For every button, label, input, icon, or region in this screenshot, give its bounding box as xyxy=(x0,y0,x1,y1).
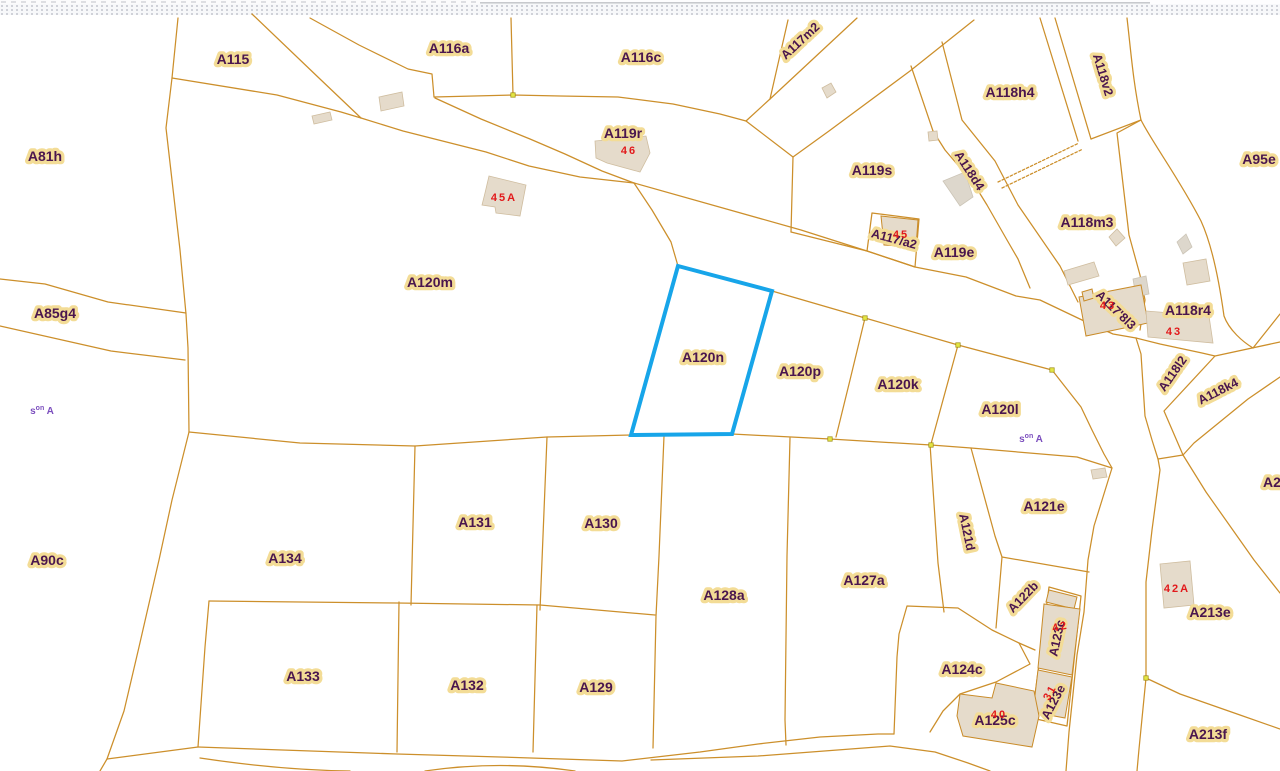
svg-text:A95e: A95e xyxy=(1242,151,1276,167)
svg-text:A85g4: A85g4 xyxy=(34,305,76,321)
svg-text:A129: A129 xyxy=(579,679,613,695)
svg-text:A213e: A213e xyxy=(1189,604,1230,620)
svg-text:46: 46 xyxy=(621,145,637,157)
svg-text:A90c: A90c xyxy=(30,552,64,568)
svg-text:A119s: A119s xyxy=(852,162,893,178)
svg-text:A115: A115 xyxy=(217,51,250,67)
svg-text:A134: A134 xyxy=(268,550,302,566)
svg-text:A120l: A120l xyxy=(981,401,1018,417)
svg-text:A130: A130 xyxy=(584,515,618,531)
svg-text:45: 45 xyxy=(893,229,909,241)
svg-text:43: 43 xyxy=(1166,326,1182,338)
svg-text:A131: A131 xyxy=(458,514,492,530)
svg-text:A118m3: A118m3 xyxy=(1061,214,1114,230)
svg-text:A127a: A127a xyxy=(843,572,884,588)
svg-text:A120k: A120k xyxy=(877,376,918,392)
svg-text:A2: A2 xyxy=(1263,474,1280,490)
svg-text:40: 40 xyxy=(991,709,1007,721)
svg-text:A128a: A128a xyxy=(703,587,744,603)
svg-text:A120n: A120n xyxy=(682,349,724,365)
svg-text:A116a: A116a xyxy=(429,40,470,56)
svg-text:A116c: A116c xyxy=(621,49,662,65)
svg-text:A132: A132 xyxy=(450,677,484,693)
svg-text:A213f: A213f xyxy=(1189,726,1227,742)
svg-text:A81h: A81h xyxy=(28,148,62,164)
svg-text:42A: 42A xyxy=(1164,583,1190,595)
svg-text:A120p: A120p xyxy=(779,363,821,379)
svg-text:A119e: A119e xyxy=(934,244,975,260)
svg-text:A119r: A119r xyxy=(604,125,643,141)
svg-text:A120m: A120m xyxy=(407,274,453,290)
svg-text:A121e: A121e xyxy=(1023,498,1064,514)
svg-text:A133: A133 xyxy=(286,668,320,684)
svg-text:A118h4: A118h4 xyxy=(985,84,1034,100)
svg-text:45A: 45A xyxy=(491,192,517,204)
svg-text:A118r4: A118r4 xyxy=(1165,302,1211,318)
svg-text:43: 43 xyxy=(1100,300,1116,312)
svg-text:A124c: A124c xyxy=(941,661,982,677)
